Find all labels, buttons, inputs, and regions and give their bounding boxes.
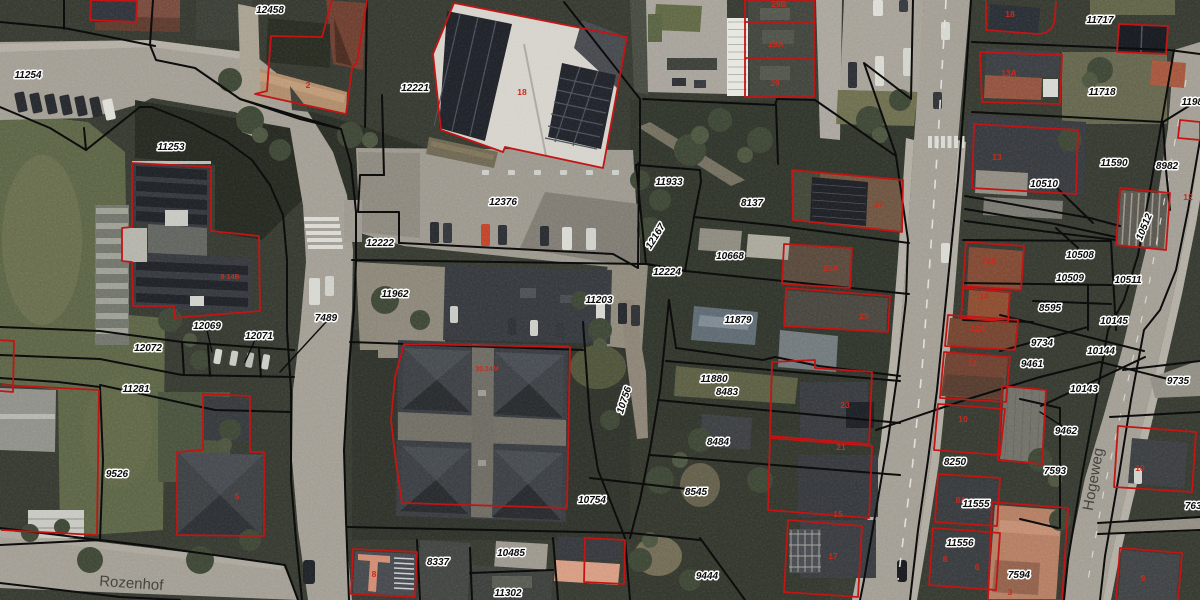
svg-text:29: 29 [770,78,780,88]
svg-text:10754: 10754 [578,495,606,506]
svg-text:12072: 12072 [134,343,162,354]
svg-text:8137: 8137 [741,198,764,209]
svg-text:10668: 10668 [716,251,744,262]
svg-text:12458: 12458 [256,5,284,16]
svg-text:10510: 10510 [1030,179,1058,190]
svg-text:25: 25 [859,311,869,321]
svg-text:18: 18 [517,87,527,97]
svg-text:11555: 11555 [962,499,990,510]
svg-text:30.14M: 30.14M [475,366,499,373]
svg-text:10511: 10511 [1114,275,1142,286]
svg-text:12222: 12222 [366,238,394,249]
svg-text:18: 18 [1005,9,1015,19]
svg-text:11718: 11718 [1088,87,1116,98]
svg-text:11962: 11962 [381,289,409,300]
svg-text:29B: 29B [771,0,787,9]
svg-text:9461: 9461 [1021,359,1044,370]
svg-text:25A: 25A [823,263,839,273]
svg-text:11254: 11254 [14,70,42,81]
svg-text:8: 8 [372,569,377,579]
svg-text:11203: 11203 [585,295,613,306]
svg-text:17: 17 [828,551,838,561]
svg-text:12221: 12221 [401,83,429,94]
svg-text:29A: 29A [768,39,784,49]
svg-text:11880: 11880 [700,374,728,385]
svg-text:27: 27 [874,199,884,209]
svg-text:9444: 9444 [696,571,719,582]
svg-text:14A: 14A [981,256,997,266]
svg-text:21: 21 [836,442,846,452]
svg-text:9526: 9526 [106,469,129,480]
svg-text:6: 6 [975,562,980,572]
svg-text:11302: 11302 [494,588,522,599]
svg-text:8545: 8545 [685,487,708,498]
svg-text:11879: 11879 [724,315,752,326]
svg-text:11281: 11281 [122,384,150,395]
svg-text:11717: 11717 [1086,15,1114,26]
svg-text:12: 12 [967,358,977,368]
svg-text:10: 10 [1135,463,1145,473]
svg-text:11253: 11253 [157,142,185,153]
svg-text:10: 10 [958,414,968,424]
svg-text:8595: 8595 [1039,303,1062,314]
svg-text:13A: 13A [1001,68,1017,78]
svg-text:8: 8 [943,554,948,564]
svg-text:8484: 8484 [707,437,730,448]
svg-text:8982: 8982 [1156,161,1179,172]
svg-text:12224: 12224 [653,267,681,278]
svg-text:7489: 7489 [315,313,338,324]
svg-text:9735: 9735 [1167,376,1190,387]
svg-text:11590: 11590 [1100,158,1128,169]
svg-text:10144: 10144 [1087,346,1115,357]
svg-text:10485: 10485 [497,548,525,559]
svg-text:11983: 11983 [1181,97,1200,108]
svg-text:23: 23 [840,400,850,410]
svg-text:2: 2 [306,80,311,90]
svg-text:10508: 10508 [1066,250,1094,261]
svg-text:15: 15 [833,509,843,519]
svg-text:12071: 12071 [245,331,273,342]
svg-text:10145: 10145 [1100,316,1128,327]
svg-text:7632: 7632 [1185,501,1200,512]
svg-text:12376: 12376 [489,197,517,208]
svg-text:11933: 11933 [655,177,683,188]
svg-text:12A: 12A [970,323,986,333]
svg-text:3: 3 [1008,587,1013,597]
svg-text:8483: 8483 [716,387,739,398]
svg-text:5: 5 [235,491,240,501]
svg-text:9: 9 [1141,573,1146,583]
svg-text:7594: 7594 [1008,570,1031,581]
svg-text:8250: 8250 [944,457,967,468]
svg-text:12: 12 [1183,192,1193,202]
svg-text:11556: 11556 [946,538,974,549]
svg-text:14: 14 [979,291,989,301]
svg-text:7593: 7593 [1044,466,1067,477]
svg-text:13: 13 [992,152,1002,162]
svg-text:12069: 12069 [193,321,221,332]
svg-text:9734: 9734 [1031,338,1054,349]
svg-text:8-14B: 8-14B [220,274,239,281]
svg-text:9462: 9462 [1055,426,1078,437]
svg-text:10143: 10143 [1070,384,1098,395]
svg-text:8337: 8337 [427,557,450,568]
svg-text:10509: 10509 [1056,273,1084,284]
